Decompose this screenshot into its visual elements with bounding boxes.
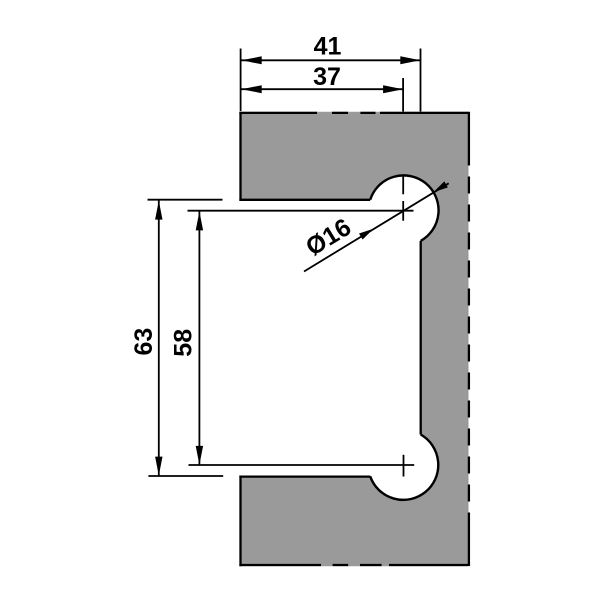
svg-text:58: 58 (170, 329, 198, 357)
svg-text:37: 37 (313, 63, 341, 91)
svg-text:41: 41 (314, 33, 342, 61)
svg-text:63: 63 (130, 328, 158, 356)
